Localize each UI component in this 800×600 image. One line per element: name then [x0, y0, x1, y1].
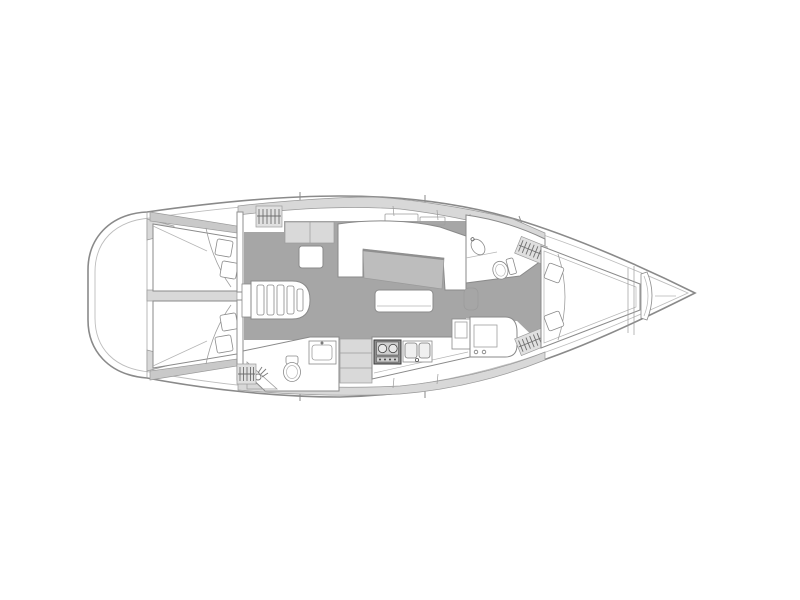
pillow — [215, 239, 234, 258]
galley-drawers — [340, 339, 372, 383]
yacht-floor-plan-page — [0, 0, 800, 600]
pillow — [220, 313, 239, 332]
cabin-wall — [237, 212, 243, 292]
steps-landing — [242, 284, 251, 317]
cabin-divider-band — [147, 290, 237, 301]
hanging-locker-2 — [237, 364, 256, 384]
galley-stove — [374, 340, 401, 364]
head-corner-pillar — [464, 288, 478, 310]
salon-stool — [299, 246, 323, 268]
pillow — [220, 261, 239, 280]
toilet-aft — [284, 356, 301, 382]
hanging-locker-1 — [256, 206, 282, 227]
salon-cabinet — [285, 222, 334, 243]
cabinet-body — [285, 222, 334, 243]
companionway — [242, 281, 310, 319]
yacht-floor-plan — [0, 0, 800, 600]
pillow — [215, 335, 234, 354]
aft-head-sink — [309, 341, 336, 364]
locker-body — [256, 206, 282, 227]
galley-double-sink — [403, 341, 432, 362]
salon-bench — [375, 290, 433, 312]
